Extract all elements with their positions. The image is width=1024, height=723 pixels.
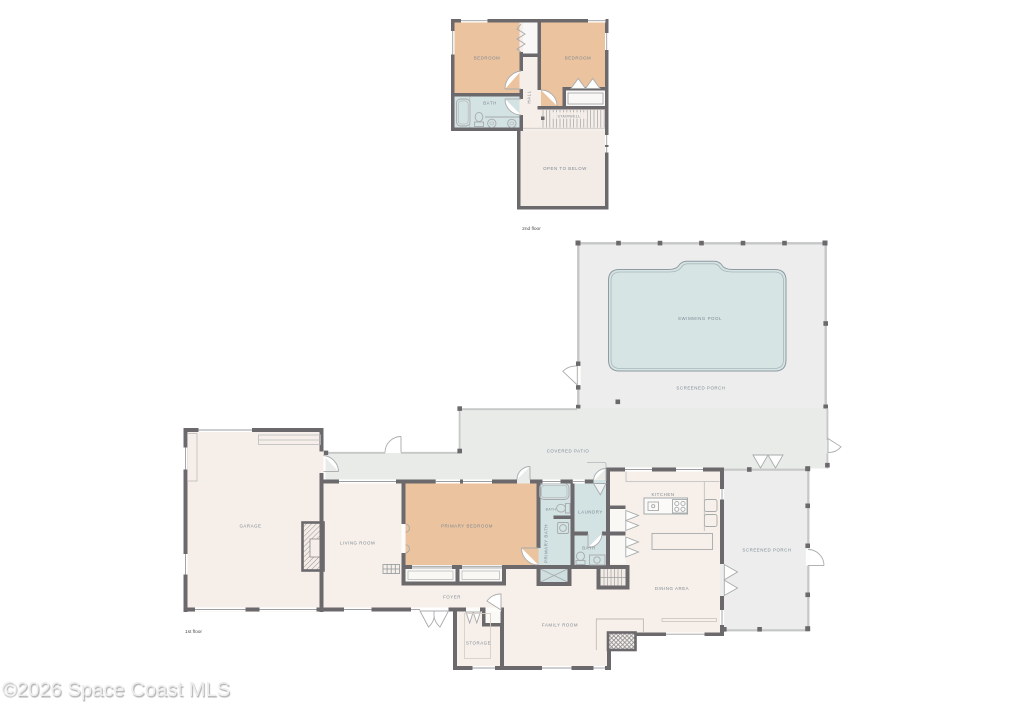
svg-text:DINING AREA: DINING AREA [655, 586, 689, 591]
svg-text:SCREENED PORCH: SCREENED PORCH [676, 385, 725, 390]
svg-text:GARAGE: GARAGE [239, 524, 261, 529]
svg-text:BATH: BATH [546, 508, 557, 512]
svg-text:SWIMMING POOL: SWIMMING POOL [678, 316, 722, 321]
svg-text:LAUNDRY: LAUNDRY [578, 510, 603, 515]
svg-text:PRIMARY BATH: PRIMARY BATH [544, 524, 549, 563]
svg-text:COVERED PATIO: COVERED PATIO [547, 448, 590, 453]
svg-text:STORAGE: STORAGE [466, 641, 491, 646]
svg-text:BATH: BATH [483, 101, 497, 106]
svg-text:FOYER: FOYER [443, 595, 461, 600]
svg-text:1st floor: 1st floor [185, 629, 202, 635]
svg-text:KITCHEN: KITCHEN [651, 492, 674, 497]
svg-text:BATH: BATH [582, 546, 596, 551]
svg-text:BEDROOM: BEDROOM [565, 56, 592, 61]
svg-text:OPEN TO BELOW: OPEN TO BELOW [543, 166, 587, 171]
svg-text:LIVING ROOM: LIVING ROOM [340, 541, 375, 546]
svg-text:SCREENED PORCH: SCREENED PORCH [742, 548, 791, 553]
svg-text:BEDROOM: BEDROOM [474, 56, 501, 61]
svg-text:STAIRWELL: STAIRWELL [557, 114, 580, 118]
svg-text:2nd floor: 2nd floor [522, 226, 541, 232]
svg-text:FAMILY ROOM: FAMILY ROOM [542, 623, 578, 628]
svg-text:HALL: HALL [526, 90, 531, 103]
svg-text:PRIMARY BEDROOM: PRIMARY BEDROOM [441, 524, 493, 529]
